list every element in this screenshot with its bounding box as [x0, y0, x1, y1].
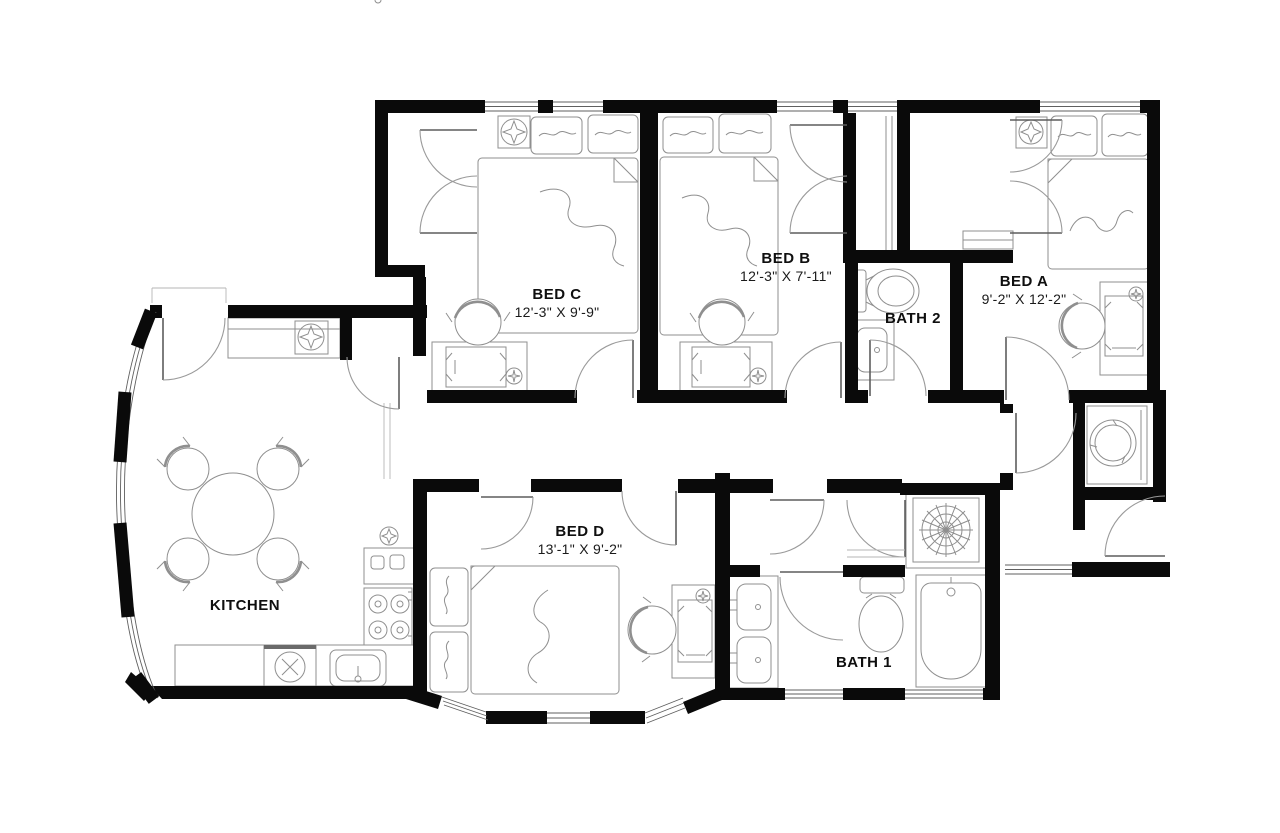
floor-plan-canvas: BED C 12'-3" X 9'-9" BED B 12'-3" X 7'-1…	[0, 0, 1280, 828]
shower-icon	[906, 492, 986, 568]
dining-chair-icon	[257, 538, 309, 591]
bed-b-door	[785, 342, 845, 404]
window	[905, 688, 983, 700]
floor-plan-drawing: BED C 12'-3" X 9'-9" BED B 12'-3" X 7'-1…	[0, 0, 1280, 828]
room-label-bed-a: BED A	[1000, 273, 1049, 290]
desk-icon	[672, 585, 715, 678]
pillow-icon	[531, 117, 582, 154]
pillow-icon	[1051, 116, 1097, 156]
dining-chair-icon	[157, 538, 209, 591]
window	[485, 100, 538, 113]
closet-bifold-door	[790, 125, 847, 233]
room-dim-bed-a: 9'-2" X 12'-2"	[982, 291, 1067, 307]
room-label-bed-d: BED D	[555, 523, 604, 540]
ceiling-fan-icon	[295, 321, 328, 354]
double-bed-icon	[471, 566, 619, 694]
room-label-kitchen: KITCHEN	[210, 597, 280, 614]
dishwasher-icon	[264, 645, 316, 686]
pillow-icon	[663, 117, 713, 153]
dining-set	[157, 437, 309, 591]
room-label-bath-2: BATH 2	[885, 310, 941, 327]
hall-door	[347, 356, 427, 410]
wall-segments-laundry	[1000, 403, 1155, 530]
room-label-bed-c: BED C	[532, 286, 581, 303]
desk-icon	[680, 342, 772, 392]
kitchen-sink-icon	[330, 650, 386, 686]
room-dim-bed-b: 12'-3" X 7'-11"	[740, 268, 832, 284]
pillow-icon	[430, 568, 468, 626]
bath-hall-door	[770, 500, 824, 554]
vent-fan-icon	[380, 527, 398, 545]
laundry-shelf	[1141, 410, 1147, 480]
laundry-fixtures	[1087, 406, 1147, 484]
window	[553, 100, 603, 113]
pillow-icon	[430, 632, 468, 692]
bed-a-door	[1004, 337, 1069, 404]
bed-d-furniture	[430, 566, 715, 694]
bed-c-door	[575, 340, 637, 404]
bath-1-door	[780, 572, 843, 640]
wall-segments-hall-south	[413, 479, 988, 495]
bed-d-door	[622, 491, 676, 545]
bed-b-furniture	[660, 114, 778, 392]
bed-a-furniture	[1016, 114, 1149, 375]
window	[1005, 562, 1072, 577]
hall-threshold	[384, 403, 390, 479]
room-label-bed-b: BED B	[761, 250, 810, 267]
dining-table-icon	[192, 473, 274, 555]
toilet-icon	[859, 577, 904, 652]
room-label-bath-1: BATH 1	[836, 654, 892, 671]
ceiling-fan-icon	[1016, 117, 1047, 148]
bed-d-closet-door	[481, 497, 533, 549]
fridge-icon	[364, 548, 414, 584]
chair-icon	[628, 597, 676, 662]
room-dim-bed-c: 12'-3" X 9'-9"	[515, 304, 600, 320]
pillow-icon	[719, 114, 771, 153]
window	[777, 100, 833, 113]
window	[848, 100, 897, 113]
closet-bifold-door	[420, 130, 477, 233]
dining-chair-icon	[257, 437, 309, 490]
pillow-icon	[1102, 114, 1148, 156]
curved-window-wall	[116, 311, 158, 700]
room-dim-bed-d: 13'-1" X 9'-2"	[538, 541, 623, 557]
window	[785, 688, 843, 700]
desk-icon	[1100, 282, 1148, 375]
toilet-icon	[850, 269, 919, 313]
dining-chair-icon	[157, 437, 209, 490]
window	[1040, 100, 1140, 113]
double-sink-vanity-icon	[729, 576, 778, 688]
pillow-icon	[588, 115, 638, 153]
washer-icon	[1090, 420, 1136, 466]
single-bed-icon	[1048, 159, 1149, 269]
entry-step	[152, 288, 226, 303]
shower-door	[847, 500, 905, 557]
entry-closet	[228, 318, 340, 358]
rear-exterior-door	[1105, 496, 1167, 558]
wall-segments-left-upper	[375, 100, 426, 357]
laundry-door	[999, 413, 1076, 473]
desk-icon	[432, 342, 527, 392]
bay-window	[442, 697, 685, 723]
bed-c-furniture	[432, 115, 638, 392]
entry-door	[162, 304, 226, 380]
ceiling-fan-icon	[498, 116, 530, 148]
bathtub-icon	[916, 575, 986, 687]
